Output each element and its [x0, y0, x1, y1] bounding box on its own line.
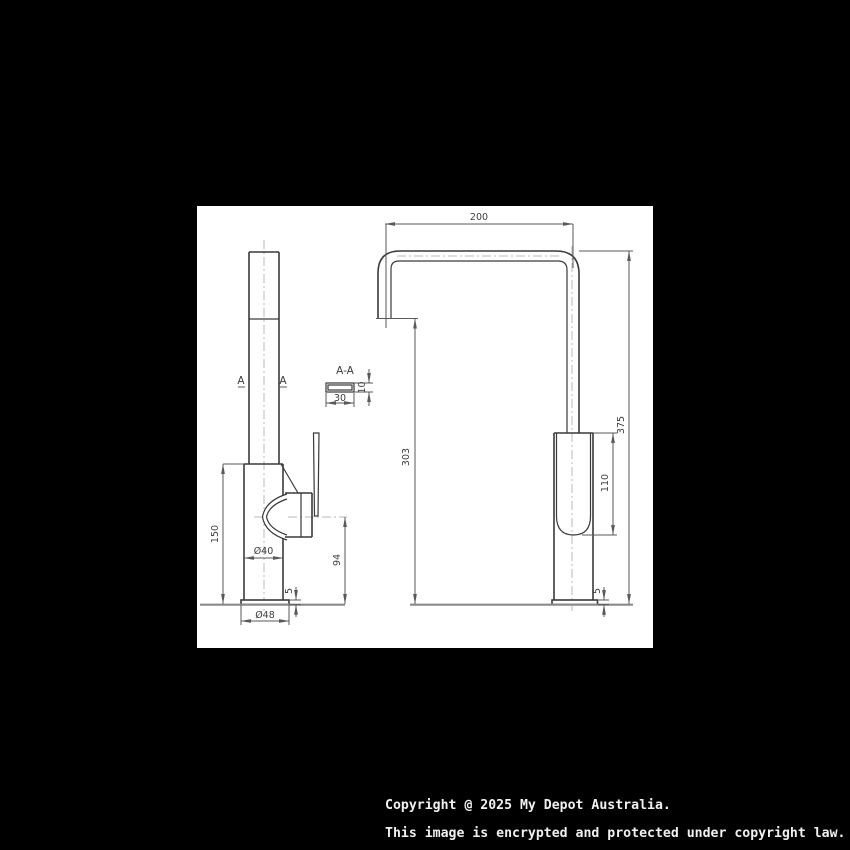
- section-marker-a-right: A: [279, 375, 287, 387]
- dim-10-label: 10: [357, 381, 368, 393]
- dim-110: 110: [582, 433, 617, 535]
- copyright-line-1: Copyright @ 2025 My Depot Australia.: [385, 799, 671, 813]
- dim-150-label: 150: [210, 525, 221, 543]
- drawing-canvas: A A 150 Ø40 Ø48 94: [197, 206, 653, 648]
- side-spout-holder: [263, 494, 288, 540]
- section-view: A-A 30 10: [326, 365, 373, 407]
- section-outer-profile: [326, 383, 354, 392]
- section-marker-a-left: A: [237, 375, 245, 387]
- section-cut-markers: A A: [237, 375, 287, 387]
- dim-200: 200: [385, 212, 573, 328]
- dim-375-label: 375: [616, 416, 627, 434]
- side-view: A A 150 Ø40 Ø48 94: [200, 240, 347, 625]
- dim-303: 303: [376, 319, 418, 605]
- dim-dia48-label: Ø48: [255, 610, 275, 621]
- dim-110-label: 110: [600, 474, 611, 492]
- dim-5-front-label: 5: [592, 588, 603, 594]
- dim-30: 30: [326, 393, 354, 407]
- side-handle-lever: [314, 433, 320, 516]
- dim-5-side-label: 5: [284, 588, 295, 594]
- faucet-technical-drawing: A A 150 Ø40 Ø48 94: [197, 206, 653, 648]
- front-spout-tube: [378, 251, 579, 433]
- dim-303-label: 303: [401, 448, 412, 466]
- section-title: A-A: [336, 365, 355, 377]
- front-body: [554, 433, 593, 600]
- copyright-line-2: This image is encrypted and protected un…: [385, 827, 846, 841]
- dim-94: 94: [332, 517, 345, 604]
- dim-94-label: 94: [332, 554, 343, 566]
- dim-dia48: Ø48: [241, 605, 289, 625]
- dim-dia40: Ø40: [244, 546, 283, 558]
- dim-dia40-label: Ø40: [254, 546, 274, 557]
- dim-30-label: 30: [334, 393, 346, 404]
- front-view: 200 303 375 110 5: [376, 212, 633, 617]
- dim-200-label: 200: [470, 212, 488, 223]
- dim-375: 375: [579, 251, 633, 604]
- page-background: { "colors": { "page_bg": "#000000", "can…: [0, 0, 850, 850]
- dim-150: 150: [210, 464, 244, 604]
- dim-10: 10: [354, 369, 373, 406]
- front-handle-outline: [557, 433, 591, 535]
